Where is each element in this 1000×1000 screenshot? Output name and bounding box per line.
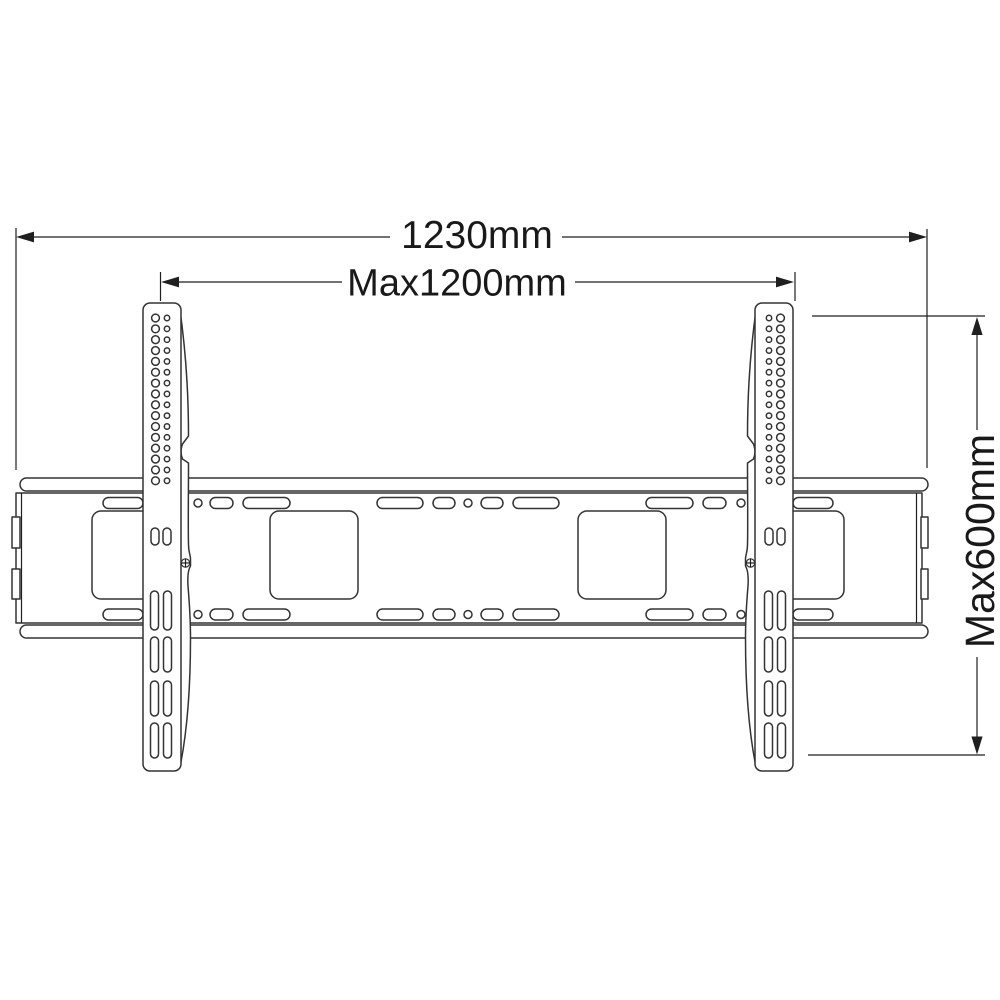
mounting-slot-row-bottom bbox=[103, 609, 833, 620]
overall-width-label: 1230mm bbox=[401, 214, 553, 257]
max-width-dimension: Max1200mm bbox=[161, 263, 796, 305]
max-height-label: Max600mm bbox=[957, 434, 1000, 648]
max-width-label: Max1200mm bbox=[347, 263, 567, 305]
drawing-canvas: 1230mm Max1200mm Max600mm bbox=[0, 0, 1000, 1000]
arrowhead-right bbox=[776, 277, 794, 288]
max-height-dimension: Max600mm bbox=[808, 316, 1000, 755]
arrowhead-left bbox=[16, 232, 34, 243]
arrowhead-up bbox=[971, 317, 982, 335]
arrowhead-right bbox=[909, 232, 927, 243]
arrowhead-left bbox=[161, 277, 179, 288]
flange-screw bbox=[181, 559, 189, 567]
bracket-body bbox=[143, 303, 181, 771]
arrowhead-down bbox=[971, 737, 982, 755]
wall-mount-technical-drawing: 1230mm Max1200mm Max600mm bbox=[0, 0, 1000, 1000]
left-tv-bracket bbox=[143, 303, 191, 771]
right-tv-bracket bbox=[746, 303, 794, 771]
mounting-slot-row-top bbox=[103, 498, 833, 509]
rail-square-cutouts bbox=[92, 511, 844, 599]
